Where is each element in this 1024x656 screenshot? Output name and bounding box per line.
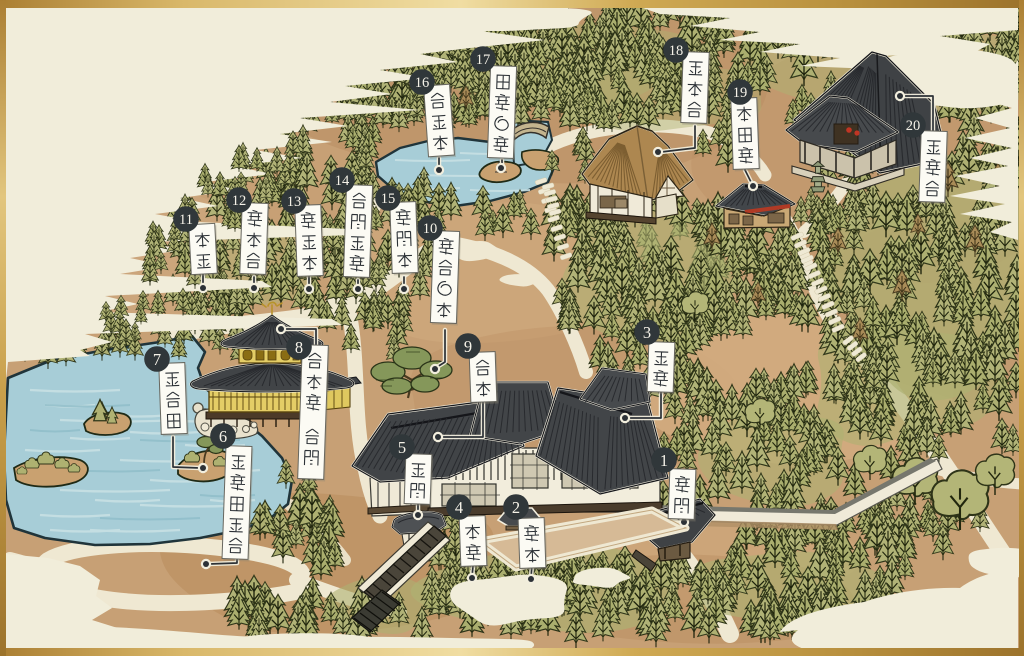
svg-text:4: 4 [455, 498, 463, 517]
svg-text:14: 14 [335, 173, 350, 189]
svg-text:3: 3 [643, 323, 651, 342]
svg-text:7: 7 [153, 350, 161, 369]
svg-text:6: 6 [219, 427, 227, 446]
svg-text:11: 11 [179, 212, 193, 228]
svg-text:5: 5 [398, 438, 406, 457]
svg-text:10: 10 [423, 221, 438, 237]
svg-text:16: 16 [415, 75, 430, 91]
svg-text:8: 8 [295, 338, 303, 357]
svg-text:2: 2 [512, 498, 520, 517]
svg-text:9: 9 [464, 337, 472, 356]
svg-text:13: 13 [287, 194, 302, 210]
svg-text:12: 12 [232, 193, 247, 209]
svg-text:17: 17 [476, 52, 491, 68]
svg-text:1: 1 [660, 451, 668, 470]
svg-text:20: 20 [906, 118, 921, 134]
svg-text:18: 18 [669, 43, 684, 59]
svg-text:15: 15 [381, 191, 396, 207]
svg-text:19: 19 [733, 85, 748, 101]
